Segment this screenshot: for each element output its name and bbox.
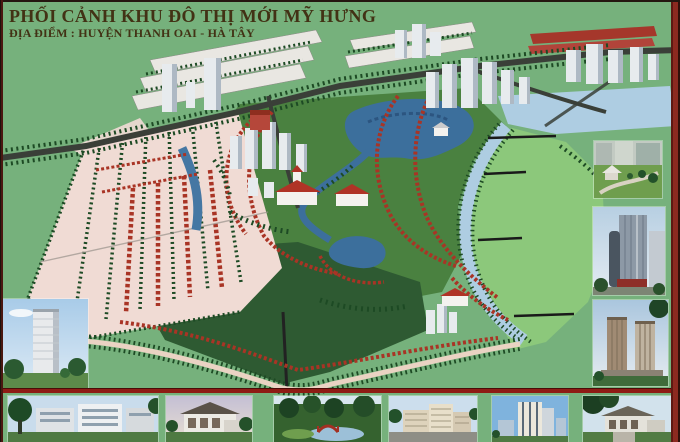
top-border bbox=[0, 0, 680, 2]
thumbnail-midrise-complex bbox=[389, 396, 477, 442]
tower-cluster-southeast bbox=[426, 304, 457, 334]
left-border bbox=[0, 0, 3, 442]
right-accent-stripe bbox=[671, 0, 680, 442]
poster-title: PHỐI CẢNH KHU ĐÔ THỊ MỚI MỸ HƯNG bbox=[9, 6, 376, 26]
thumbnail-city-highrise bbox=[492, 396, 568, 442]
thumbnail-tower-park bbox=[3, 299, 88, 388]
separator-rule bbox=[0, 388, 680, 393]
thumbnail-villa-estate bbox=[583, 396, 673, 442]
poster: PHỐI CẢNH KHU ĐÔ THỊ MỚI MỸ HƯNG ĐỊA ĐIỂ… bbox=[0, 0, 680, 442]
master-plan-rendering bbox=[0, 0, 680, 442]
thumbnail-twin-towers bbox=[593, 300, 668, 386]
thumbnail-highrise-tower bbox=[593, 207, 665, 295]
poster-subtitle: ĐỊA ĐIỂM : HUYỆN THANH OAI - HÀ TÂY bbox=[9, 27, 376, 40]
thumbnail-modern-villa bbox=[166, 396, 252, 442]
thumbnail-apartment-block bbox=[8, 396, 158, 442]
title-block: PHỐI CẢNH KHU ĐÔ THỊ MỚI MỸ HƯNG ĐỊA ĐIỂ… bbox=[9, 6, 376, 40]
thumbnail-park-bridge bbox=[274, 396, 381, 442]
thumbnail-garden-courtyard bbox=[594, 141, 662, 198]
